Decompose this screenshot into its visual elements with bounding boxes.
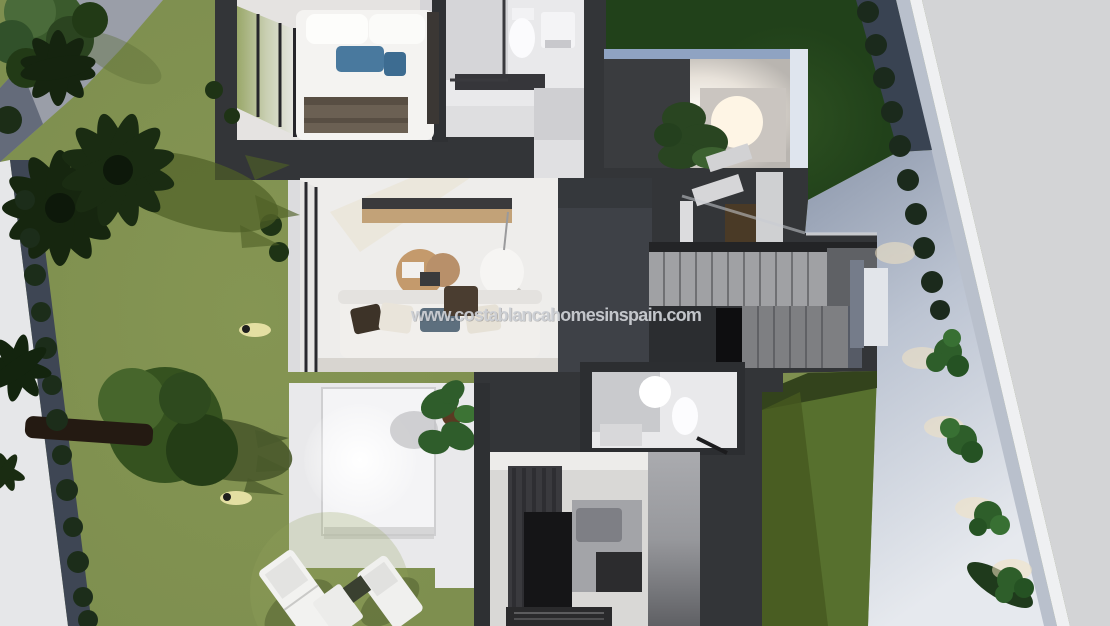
svg-text:www.costablancahomesinspain.co: www.costablancahomesinspain.com	[410, 305, 701, 325]
